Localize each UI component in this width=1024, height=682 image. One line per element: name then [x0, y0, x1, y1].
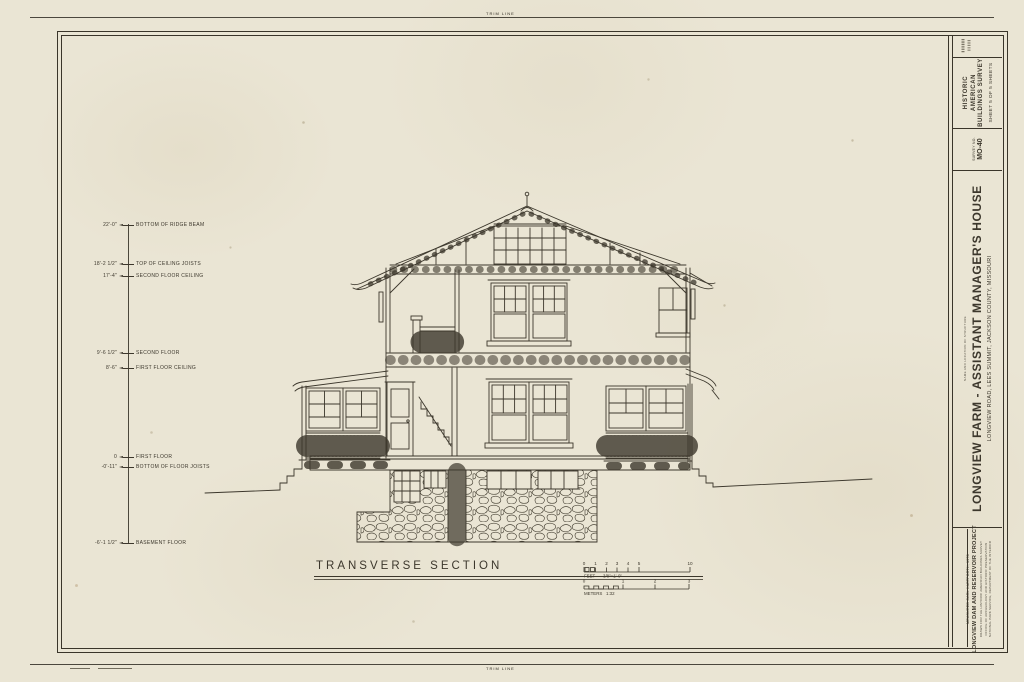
transverse-section-drawing — [0, 0, 1024, 682]
habs-drawing-sheet: TRIM LINE TRIM LINE HISTORIC AMERICAN BU… — [0, 0, 1024, 682]
